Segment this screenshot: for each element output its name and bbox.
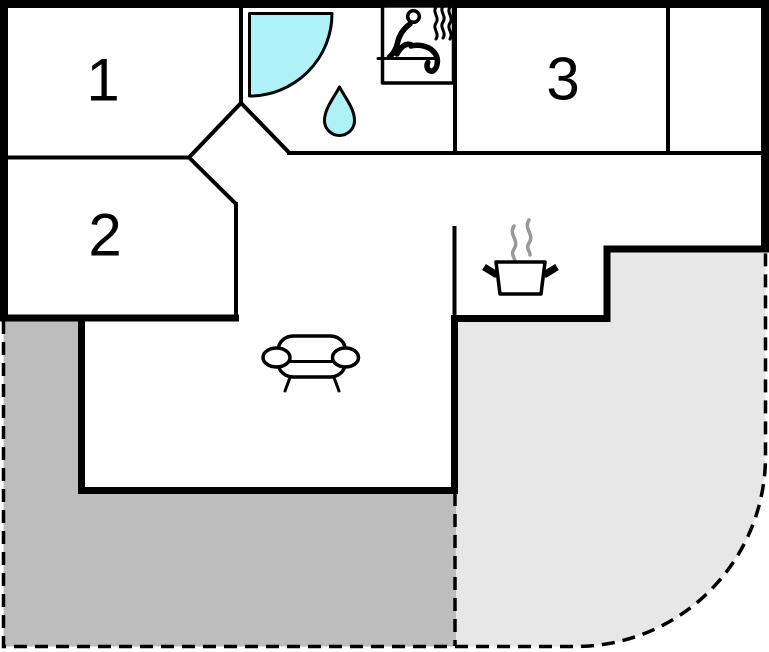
pot-steam bbox=[512, 220, 530, 262]
sofa-icon bbox=[263, 336, 359, 391]
water-drop-icon bbox=[325, 87, 355, 136]
terrace-light-area bbox=[456, 253, 766, 647]
terrace-dark-area bbox=[4, 321, 457, 647]
cooking-pot-icon bbox=[484, 220, 557, 294]
room-label-1: 1 bbox=[86, 47, 119, 114]
floor-plan-canvas: 1 2 3 bbox=[0, 0, 769, 652]
shower-icon bbox=[250, 14, 333, 97]
room-label-3: 3 bbox=[546, 46, 579, 113]
pot-body bbox=[496, 262, 545, 294]
sauna-person-head bbox=[408, 11, 420, 23]
floor-plan: 1 2 3 bbox=[0, 0, 769, 652]
sauna-icon bbox=[378, 6, 454, 83]
sofa-armrest-right bbox=[333, 348, 359, 367]
room-label-2: 2 bbox=[88, 202, 121, 269]
sofa-armrest-left bbox=[263, 348, 290, 367]
sofa-legs bbox=[285, 378, 339, 392]
